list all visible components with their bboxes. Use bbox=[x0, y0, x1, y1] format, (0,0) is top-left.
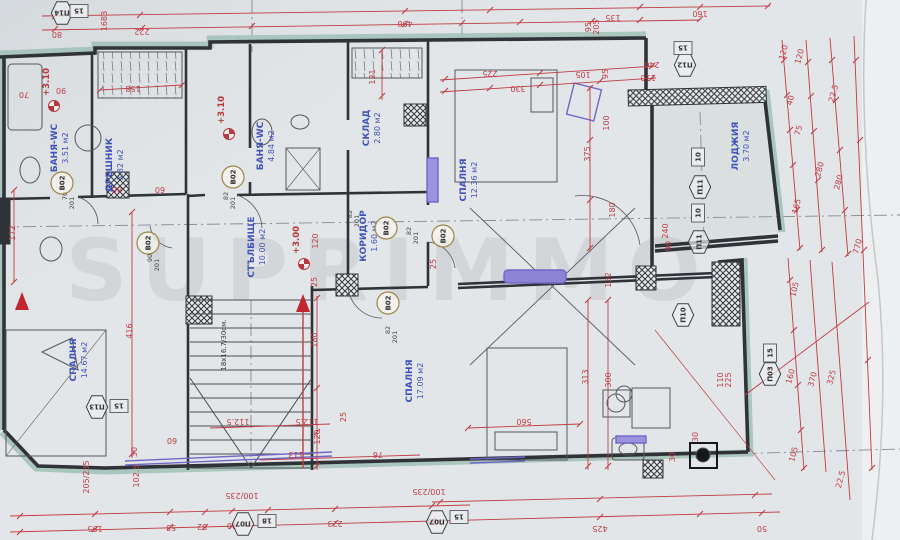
room-area: 3.70 м2 bbox=[742, 130, 751, 161]
size-box: 18 bbox=[258, 515, 276, 528]
dimension-text: 30 bbox=[130, 447, 139, 457]
dimension-text: 180 bbox=[608, 202, 617, 217]
dimension-text: 25 bbox=[339, 412, 348, 422]
room-area: 2.80 м2 bbox=[373, 112, 382, 143]
dimension-text: 100 bbox=[602, 115, 611, 130]
counter-accent bbox=[616, 436, 646, 443]
door-size-note: 201 bbox=[412, 232, 420, 244]
stove-burner bbox=[696, 448, 710, 462]
level-mark-text: +3.10 bbox=[42, 68, 52, 96]
size-box-label: 15 bbox=[678, 44, 688, 52]
dimension-text: 52 bbox=[197, 522, 207, 531]
room-area: 3.51 м2 bbox=[61, 132, 70, 163]
window-tag-label: П14 bbox=[54, 9, 70, 17]
level-mark-symbol bbox=[224, 129, 235, 140]
room-name: СКЛАД bbox=[362, 110, 372, 146]
dimension-text: 113 bbox=[288, 450, 303, 459]
door-tag: B02 bbox=[137, 232, 159, 254]
dimension-text: 205 bbox=[592, 19, 601, 34]
door-tag-label: B02 bbox=[440, 228, 448, 243]
size-box: 15 bbox=[450, 511, 468, 524]
door-tag-label: B02 bbox=[383, 220, 391, 235]
dimension-text: 121 bbox=[368, 69, 377, 84]
radiator-1 bbox=[427, 158, 438, 202]
room-area: 12.36 м2 bbox=[470, 162, 479, 199]
door-tag: B02 bbox=[222, 166, 244, 188]
dimension-text: 160 bbox=[692, 9, 707, 18]
dimension-text: 240 bbox=[644, 60, 659, 69]
door-tag: B02 bbox=[375, 217, 397, 239]
size-box-label: 15 bbox=[454, 513, 464, 521]
floor-plan-drawing: SUPRIMMO bbox=[0, 0, 900, 540]
window-tag-label: П13 bbox=[89, 403, 105, 411]
dimension-text: 120 bbox=[313, 429, 322, 444]
window-tag-label: П11 bbox=[696, 234, 704, 250]
dimension-text: 30 bbox=[668, 452, 677, 462]
level-mark-text: +3.00 bbox=[292, 226, 302, 254]
level-mark-symbol bbox=[49, 101, 60, 112]
dimension-text: 112.5 bbox=[227, 417, 250, 426]
dimension-text: 60 bbox=[167, 436, 177, 445]
door-size-note: 201 bbox=[153, 259, 161, 271]
dimension-text: 313 bbox=[581, 369, 590, 384]
room-name: БАНЯ-WC bbox=[256, 121, 266, 170]
window-tag-label: П12 bbox=[677, 61, 693, 69]
door-tag-label: B02 bbox=[59, 175, 67, 190]
size-box: 10 bbox=[692, 148, 705, 166]
size-box-label: 18 bbox=[262, 517, 272, 525]
window-tag-label: П11 bbox=[697, 179, 705, 195]
dimension-text: 30 bbox=[691, 432, 700, 442]
room-area: 3.82 м2 bbox=[116, 149, 125, 180]
room-name: СПАЛНЯ bbox=[69, 338, 79, 381]
dimension-text: 132 bbox=[604, 272, 613, 287]
window-tag-label: П10 bbox=[680, 307, 688, 323]
dimension-text: 105 bbox=[575, 70, 590, 79]
size-box: 15 bbox=[674, 42, 692, 55]
dimension-text: 25 bbox=[429, 259, 438, 269]
door-tag-label: B02 bbox=[385, 295, 393, 310]
dimension-text: 50 bbox=[757, 524, 767, 533]
room-area: 17.09 м2 bbox=[416, 363, 425, 400]
dimension-text: 240 bbox=[661, 223, 670, 238]
floor-plan-canvas: SUPRIMMO bbox=[0, 0, 900, 540]
dimension-text: 110 bbox=[640, 73, 655, 82]
window-tag-label: П07 bbox=[235, 520, 251, 528]
dimension-text: 375 bbox=[583, 146, 592, 161]
dimension-text: 223 bbox=[327, 519, 342, 528]
window-tag-label: П03 bbox=[767, 366, 775, 382]
size-box-label: 10 bbox=[695, 152, 703, 162]
room-name: ЛОДЖИЯ bbox=[731, 122, 741, 171]
loggia-floor bbox=[652, 94, 780, 244]
storage-shelves bbox=[352, 48, 422, 78]
dimension-text: 172 bbox=[8, 225, 17, 240]
door-size-note: 201 bbox=[68, 197, 76, 209]
dimension-text: 90 bbox=[664, 241, 673, 251]
dimension-text: 158 bbox=[125, 84, 140, 93]
room-name: ДРЕШНИК bbox=[105, 137, 115, 192]
level-mark-text: +3.10 bbox=[217, 96, 227, 124]
dimension-text: 70 bbox=[19, 90, 29, 99]
door-tag-label: B02 bbox=[145, 235, 153, 250]
door-size-note: 201 bbox=[229, 197, 237, 209]
room-name: БАНЯ-WC bbox=[50, 123, 60, 172]
dimension-text: 225 bbox=[482, 69, 497, 78]
room-name: КОРИДОР bbox=[359, 210, 369, 262]
door-tag: B02 bbox=[377, 292, 399, 314]
dimension-text: 416 bbox=[125, 323, 134, 338]
dimension-text: 102.5 bbox=[132, 465, 141, 488]
size-box-label: 15 bbox=[114, 402, 124, 410]
door-tag: B02 bbox=[432, 225, 454, 247]
dimension-text: 225 bbox=[724, 372, 733, 387]
size-box-label: 10 bbox=[695, 208, 703, 218]
dimension-text: 425 bbox=[592, 524, 607, 533]
dimension-text: 80 bbox=[52, 30, 62, 39]
level-mark-symbol bbox=[299, 259, 310, 270]
room-area: 14.67 м2 bbox=[80, 342, 89, 379]
size-box: 15 bbox=[110, 400, 128, 413]
size-box: 15 bbox=[70, 5, 88, 18]
dimension-text: 112.5 bbox=[296, 417, 319, 426]
dimension-text: 120 bbox=[311, 233, 320, 248]
dimension-text: 90 bbox=[56, 86, 66, 95]
dimension-text: 55 bbox=[166, 523, 176, 532]
dimension-text: 195 bbox=[87, 524, 102, 533]
window-tag-label: П07 bbox=[429, 518, 445, 526]
room-name: СПАЛНЯ bbox=[459, 158, 469, 201]
dimension-text: 498 bbox=[397, 19, 412, 28]
door-tag: B02 bbox=[51, 172, 73, 194]
size-box: 10 bbox=[692, 204, 705, 222]
dimension-text: 25 bbox=[310, 277, 319, 287]
room-area: 10.00 м2 bbox=[258, 229, 267, 266]
size-box-label: 15 bbox=[74, 7, 84, 15]
dimension-text: 330 bbox=[510, 84, 525, 93]
room-name: СТЪЛБИЩЕ bbox=[247, 216, 257, 277]
door-tag-label: B02 bbox=[230, 169, 238, 184]
dimension-text: 180 bbox=[310, 332, 319, 347]
dimension-text: 222 bbox=[134, 27, 149, 36]
dimension-text: 205/235 bbox=[82, 460, 91, 493]
dimension-text: 560 bbox=[516, 417, 531, 426]
size-box-label: 15 bbox=[767, 348, 775, 358]
dimension-text: 135 bbox=[605, 13, 620, 22]
dimension-text: 100/235 bbox=[225, 491, 258, 500]
dimension-text: 300 bbox=[604, 372, 613, 387]
sofa bbox=[504, 270, 566, 283]
size-box: 15 bbox=[764, 344, 777, 362]
dimension-text: 60 bbox=[155, 185, 165, 194]
dimension-text: 95 bbox=[601, 69, 610, 79]
room-name: СПАЛНЯ bbox=[405, 359, 415, 402]
room-area: 4.84 м2 bbox=[267, 130, 276, 161]
dimension-text: 1683 bbox=[100, 11, 109, 31]
dimension-text: 76 bbox=[373, 450, 383, 459]
dimension-text: 100/235 bbox=[412, 487, 445, 496]
door-size-note: 201 bbox=[391, 331, 399, 343]
stair-note: 18x16.7/30см. bbox=[220, 319, 228, 370]
